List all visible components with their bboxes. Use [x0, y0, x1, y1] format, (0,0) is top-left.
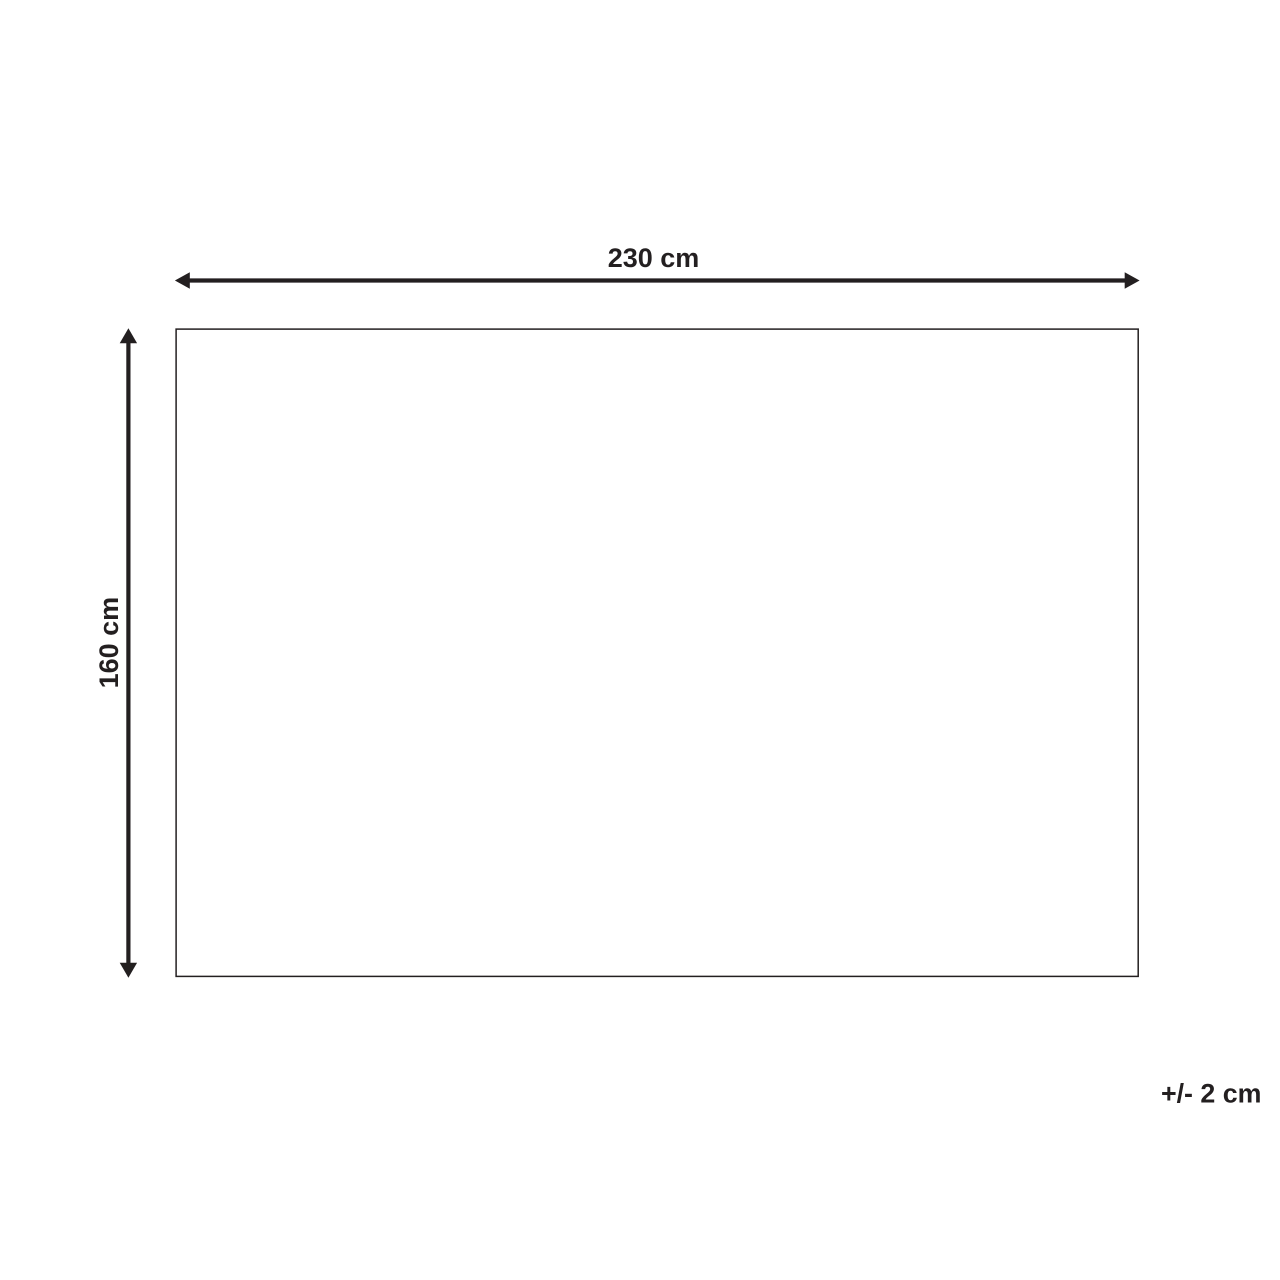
- svg-text:+/- 2 cm: +/- 2 cm: [1161, 1079, 1262, 1109]
- svg-text:160 cm: 160 cm: [94, 597, 124, 689]
- svg-text:230 cm: 230 cm: [608, 243, 700, 273]
